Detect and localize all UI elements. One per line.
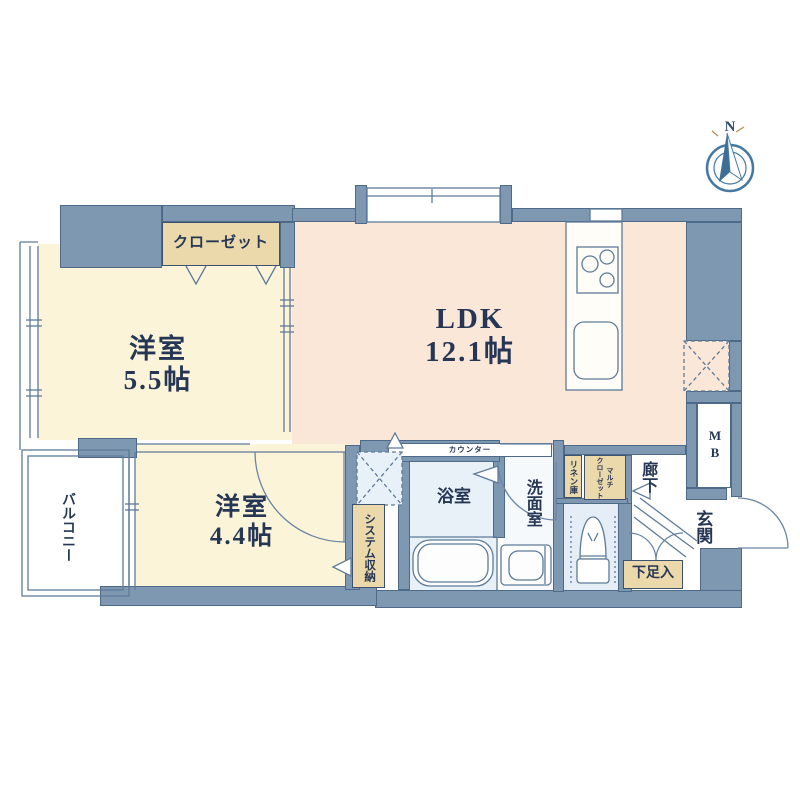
bedroom2-name: 洋室 <box>215 494 269 523</box>
ldk-size: 12.1帖 <box>425 336 515 369</box>
multi-closet-line2: クローゼット <box>596 457 604 499</box>
hallway-label: 廊下 <box>636 456 658 498</box>
wall <box>729 341 742 391</box>
linen-label: リネン庫 <box>566 457 580 496</box>
closet-label: クローゼット <box>162 222 280 266</box>
wall <box>60 205 162 268</box>
counter-label: カウンター <box>388 443 552 457</box>
bedroom1-size: 5.5帖 <box>124 365 193 396</box>
wall <box>78 438 137 458</box>
refrigerator-space-hatch <box>684 341 729 391</box>
toilet-floor <box>564 502 620 592</box>
compass-north-label: N <box>716 118 744 138</box>
wall <box>500 185 512 224</box>
shoe-cabinet-label: 下足入 <box>623 560 683 589</box>
wall <box>686 488 727 500</box>
multi-closet-line1: マルチ <box>606 467 614 488</box>
wall <box>686 391 742 403</box>
wall <box>375 590 742 608</box>
bedroom2-label: 洋室 4.4帖 <box>142 492 342 554</box>
meter-box-label: MB <box>703 418 725 472</box>
balcony-label: バルコニー <box>56 482 78 572</box>
washroom-label: 洗面室 <box>520 472 543 534</box>
wall <box>162 205 295 222</box>
wall <box>100 586 377 606</box>
floor-plan: クローゼット 洋室 5.5帖 LDK 12.1帖 洋室 4.4帖 バルコニー シ… <box>0 0 800 800</box>
wall <box>512 208 742 222</box>
bedroom2-size: 4.4帖 <box>210 523 274 552</box>
entrance-label: 玄関 <box>691 503 714 551</box>
system-storage-label: システム収納 <box>358 509 379 585</box>
bedroom1-name: 洋室 <box>129 334 187 365</box>
wall <box>731 403 742 497</box>
bathroom-floor <box>408 453 497 590</box>
wall <box>493 450 505 538</box>
wall <box>686 222 742 341</box>
bathroom-label: 浴室 <box>424 486 484 508</box>
wall <box>398 450 410 590</box>
wall <box>553 440 564 592</box>
wall <box>355 185 367 224</box>
wall <box>564 445 686 455</box>
wall <box>280 222 295 268</box>
wall <box>686 403 697 488</box>
bedroom1-label: 洋室 5.5帖 <box>58 332 258 398</box>
multi-closet-label: マルチ クローゼット <box>585 456 625 499</box>
ldk-name: LDK <box>436 303 505 336</box>
bay-window <box>367 188 500 222</box>
entrance-door-arc <box>738 498 788 548</box>
ldk-label: LDK 12.1帖 <box>350 298 590 374</box>
